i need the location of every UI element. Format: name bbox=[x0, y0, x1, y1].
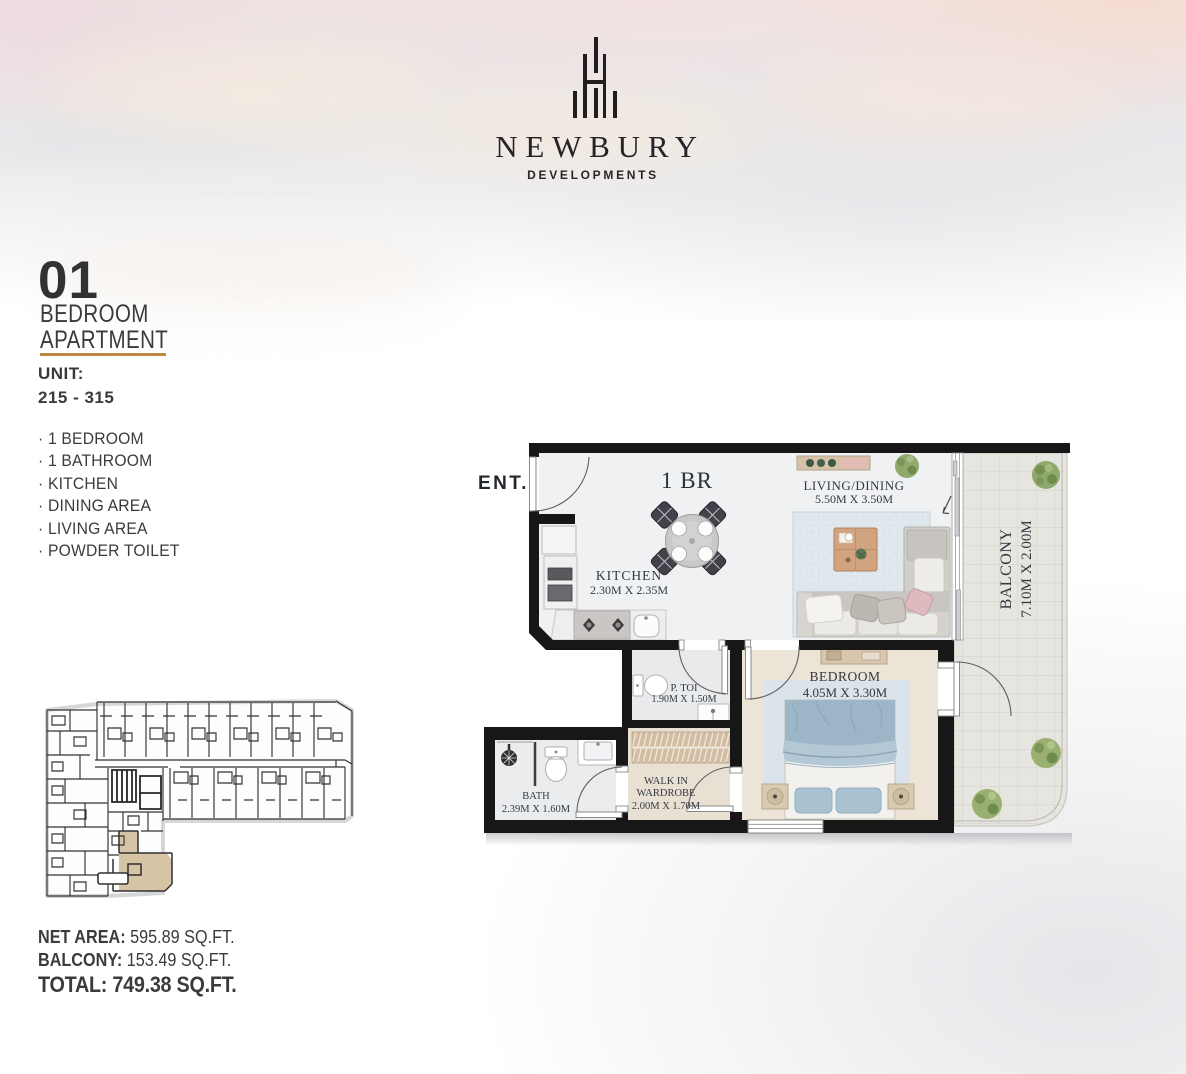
svg-text:2.30M X 2.35M: 2.30M X 2.35M bbox=[590, 583, 668, 597]
svg-text:WARDROBE: WARDROBE bbox=[637, 788, 696, 799]
svg-text:7.10M X 2.00M: 7.10M X 2.00M bbox=[1019, 520, 1035, 618]
svg-text:1.90M X 1.50M: 1.90M X 1.50M bbox=[651, 694, 716, 705]
svg-text:2.39M X 1.60M: 2.39M X 1.60M bbox=[502, 804, 571, 815]
svg-text:1 BR: 1 BR bbox=[661, 468, 713, 493]
svg-text:BALCONY: BALCONY bbox=[998, 529, 1015, 610]
svg-text:P. TOI: P. TOI bbox=[670, 683, 698, 694]
svg-text:WALK IN: WALK IN bbox=[644, 776, 688, 787]
svg-text:5.50M X 3.50M: 5.50M X 3.50M bbox=[815, 492, 893, 506]
svg-text:BEDROOM: BEDROOM bbox=[809, 669, 880, 684]
svg-text:LIVING/DINING: LIVING/DINING bbox=[803, 478, 904, 493]
svg-text:BATH: BATH bbox=[522, 791, 550, 802]
svg-text:2.00M X 1.70M: 2.00M X 1.70M bbox=[632, 801, 701, 812]
svg-text:KITCHEN: KITCHEN bbox=[596, 568, 662, 583]
svg-text:4.05M X 3.30M: 4.05M X 3.30M bbox=[803, 685, 888, 700]
